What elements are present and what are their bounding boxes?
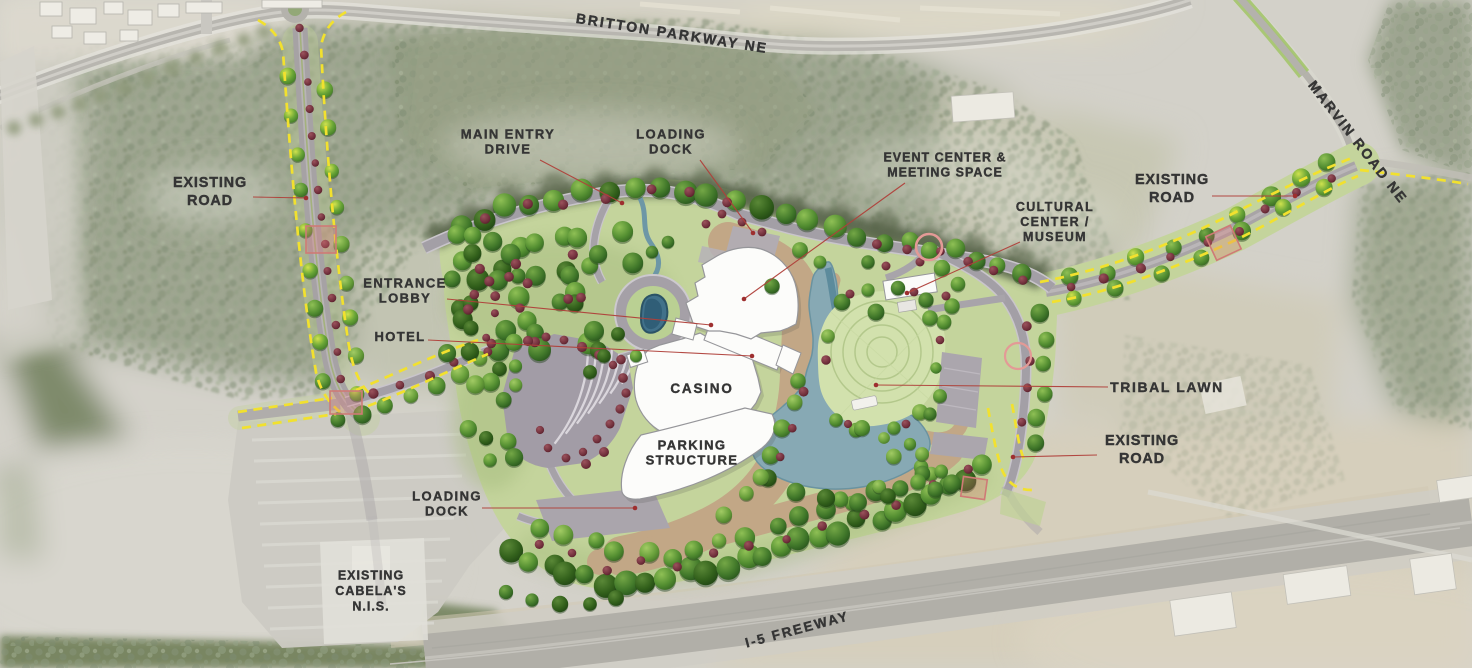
svg-text:CASINO: CASINO [670, 381, 733, 396]
svg-text:PARKINGSTRUCTURE: PARKINGSTRUCTURE [646, 438, 739, 468]
svg-text:TRIBAL LAWN: TRIBAL LAWN [1110, 379, 1224, 395]
svg-text:EVENT CENTER &MEETING SPACE: EVENT CENTER &MEETING SPACE [883, 151, 1006, 180]
svg-text:HOTEL: HOTEL [374, 329, 425, 344]
svg-text:CULTURALCENTER /MUSEUM: CULTURALCENTER /MUSEUM [1016, 200, 1094, 244]
